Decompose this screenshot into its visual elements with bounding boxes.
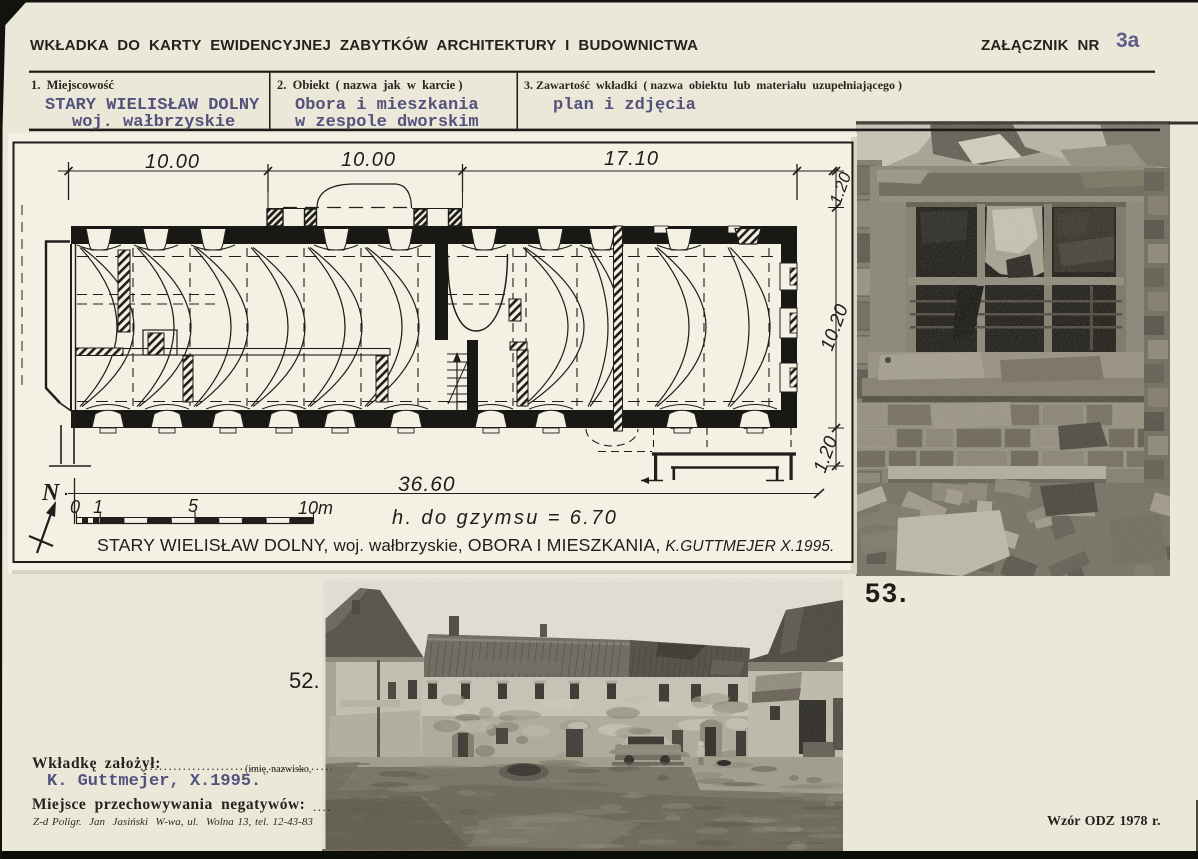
svg-text:STARY WIELISŁAW DOLNY, woj. wa: STARY WIELISŁAW DOLNY, woj. wałbrzyskie,… [97,535,834,555]
svg-text:36.60: 36.60 [398,473,456,496]
svg-text:52.: 52. [289,668,320,693]
svg-text:10.00: 10.00 [341,149,396,171]
svg-text:10.00: 10.00 [145,151,200,173]
svg-text:1: 1 [93,497,103,517]
svg-text:N: N [41,480,61,506]
svg-text:h. do gzymsu = 6.70: h. do gzymsu = 6.70 [392,507,618,529]
svg-text:17.10: 17.10 [604,148,659,170]
svg-text:5: 5 [188,496,199,516]
svg-text:0: 0 [70,497,80,517]
svg-text:53.: 53. [865,578,909,608]
svg-text:10m: 10m [298,498,333,518]
